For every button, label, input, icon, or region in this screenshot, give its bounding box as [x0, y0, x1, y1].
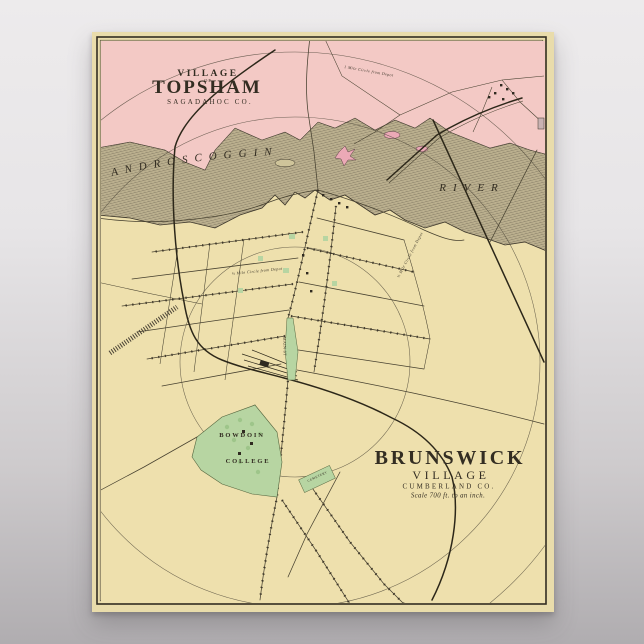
map-poster: VILLAGE OF TOPSHAM SAGADAHOC CO. ANDROSC…	[92, 32, 554, 612]
main-street-label: MAIN ST	[282, 337, 288, 356]
bowdoin-label: BOWDOIN	[219, 432, 264, 439]
green-lot	[238, 288, 243, 293]
topsham-county-label: SAGADAHOC CO.	[167, 98, 253, 106]
brunswick-scale-label: Scale 700 ft. to an inch.	[411, 493, 485, 500]
brunswick-village-label: VILLAGE	[412, 468, 489, 482]
brunswick-name-label: BRUNSWICK	[375, 447, 526, 469]
river-label: RIVER	[438, 182, 505, 194]
antique-map-svg: VILLAGE OF TOPSHAM SAGADAHOC CO. ANDROSC…	[92, 32, 554, 612]
college-building	[238, 452, 241, 455]
green-lot	[283, 268, 289, 273]
shad-island	[275, 159, 295, 167]
map-content: VILLAGE OF TOPSHAM SAGADAHOC CO. ANDROSC…	[92, 37, 554, 612]
river-island	[384, 131, 400, 138]
green-lot	[323, 236, 328, 241]
college-building	[250, 442, 253, 445]
green-lot	[332, 281, 337, 286]
green-lot	[289, 234, 295, 239]
brunswick-county-label: CUMBERLAND CO.	[402, 483, 495, 491]
green-lot	[258, 256, 263, 261]
college-label: COLLEGE	[226, 458, 271, 465]
topsham-name-label: TOPSHAM	[152, 77, 262, 98]
